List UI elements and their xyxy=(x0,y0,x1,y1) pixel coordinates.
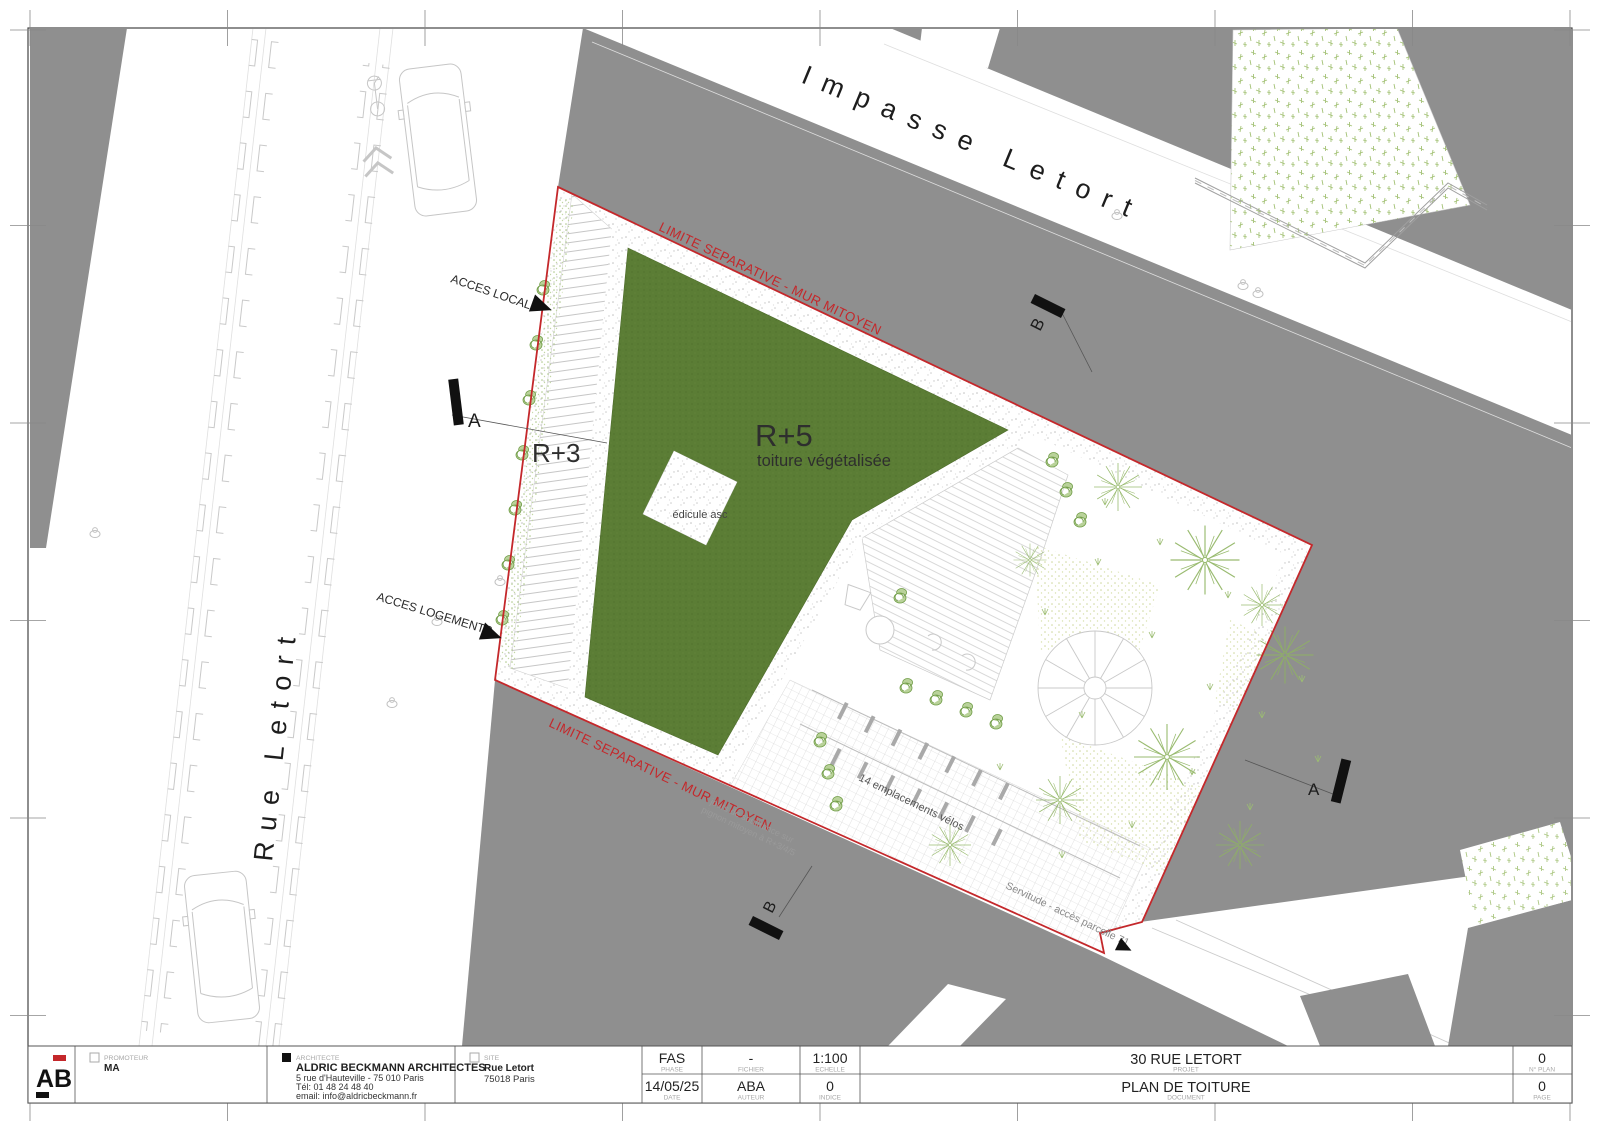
section-a-letter: A xyxy=(468,411,481,432)
site-label: SITE xyxy=(484,1055,500,1062)
r5-label: R+5 xyxy=(755,418,813,453)
indice-value: 0 xyxy=(826,1078,834,1094)
fichier-label: FICHIER xyxy=(738,1067,764,1074)
title-block: AB PROMOTEUR MA ARCHITECTE ALDRIC BECKMA… xyxy=(28,1046,1572,1103)
projet-label: PROJET xyxy=(1173,1067,1199,1074)
page-label: PAGE xyxy=(1533,1095,1551,1102)
neighbor-southeast-corner xyxy=(1448,900,1572,1046)
parking-bays-right xyxy=(253,62,390,1049)
echelle-label: ECHELLE xyxy=(815,1067,845,1074)
logo-black-mark xyxy=(36,1092,49,1098)
r5-sub-label: toiture végétalisée xyxy=(757,452,891,470)
phase-label: PHASE xyxy=(661,1067,684,1074)
promoteur-label: PROMOTEUR xyxy=(104,1055,148,1062)
architecte-label: ARCHITECTE xyxy=(296,1055,340,1062)
echelle-value: 1:100 xyxy=(812,1050,847,1066)
car-bottom xyxy=(178,870,265,1025)
nplan-label: N° PLAN xyxy=(1529,1066,1555,1074)
street-rue-letort xyxy=(139,28,483,1049)
logo-text: AB xyxy=(36,1065,72,1093)
acces-local: ACCES LOCAL xyxy=(449,272,555,319)
date-label: DATE xyxy=(664,1095,682,1102)
fichier-value: - xyxy=(749,1050,754,1066)
section-a-letter: A xyxy=(1308,780,1320,799)
date-value: 14/05/25 xyxy=(645,1078,700,1094)
gap-north-buildings xyxy=(918,28,1000,68)
architecte-checkbox xyxy=(282,1053,291,1062)
auteur-value: ABA xyxy=(737,1078,766,1094)
roof-plan-svg: A A B B ACCES LOCAL ACCES LOGEMENTS Impa… xyxy=(0,0,1600,1131)
indice-label: INDICE xyxy=(819,1095,842,1102)
site-city: 75018 Paris xyxy=(484,1074,535,1085)
site-plan: A A B B ACCES LOCAL ACCES LOGEMENTS Impa… xyxy=(30,28,1572,1049)
page-value: 0 xyxy=(1538,1078,1546,1094)
phase-value: FAS xyxy=(659,1050,685,1066)
spiral-stair xyxy=(1038,631,1152,745)
nplan-value: 0 xyxy=(1538,1050,1546,1066)
acces-local-label: ACCES LOCAL xyxy=(449,272,533,313)
promoteur-value: MA xyxy=(104,1063,120,1074)
acces-logements-label: ACCES LOGEMENTS xyxy=(375,589,494,637)
site-name: Rue Letort xyxy=(484,1063,535,1074)
acces-logements: ACCES LOGEMENTS xyxy=(375,589,505,646)
auteur-label: AUTEUR xyxy=(738,1095,765,1102)
neighbor-west xyxy=(30,28,127,548)
architecte-addr3: email: info@aldricbeckmann.fr xyxy=(296,1091,417,1101)
document-label: DOCUMENT xyxy=(1167,1095,1205,1102)
edicule-label: édicule asc xyxy=(672,509,728,521)
logo-red-mark xyxy=(53,1055,66,1061)
drawing-sheet: A A B B ACCES LOCAL ACCES LOGEMENTS Impa… xyxy=(0,0,1600,1131)
r3-label: R+3 xyxy=(532,438,580,468)
car-top xyxy=(393,62,483,218)
